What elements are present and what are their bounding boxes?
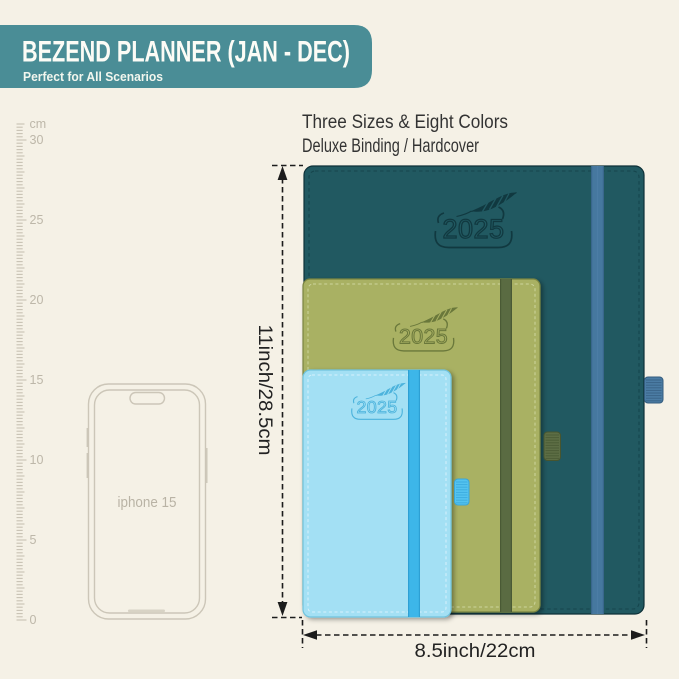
svg-text:10: 10 — [30, 453, 44, 467]
svg-text:Deluxe Binding / Hardcover: Deluxe Binding / Hardcover — [302, 135, 479, 157]
svg-text:Perfect for All Scenarios: Perfect for All Scenarios — [23, 69, 163, 84]
svg-text:5: 5 — [30, 533, 37, 547]
svg-text:BEZEND PLANNER (JAN - DEC): BEZEND PLANNER (JAN - DEC) — [22, 36, 350, 69]
svg-text:15: 15 — [30, 373, 44, 387]
svg-text:Three Sizes & Eight Colors: Three Sizes & Eight Colors — [302, 111, 508, 133]
svg-text:25: 25 — [30, 213, 44, 227]
svg-text:30: 30 — [30, 133, 44, 147]
svg-text:11inch/28.5cm: 11inch/28.5cm — [254, 325, 275, 456]
svg-text:iphone 15: iphone 15 — [118, 494, 177, 511]
svg-text:8.5inch/22cm: 8.5inch/22cm — [415, 641, 536, 662]
svg-text:0: 0 — [30, 613, 37, 627]
svg-text:cm: cm — [30, 117, 47, 131]
svg-text:20: 20 — [30, 293, 44, 307]
